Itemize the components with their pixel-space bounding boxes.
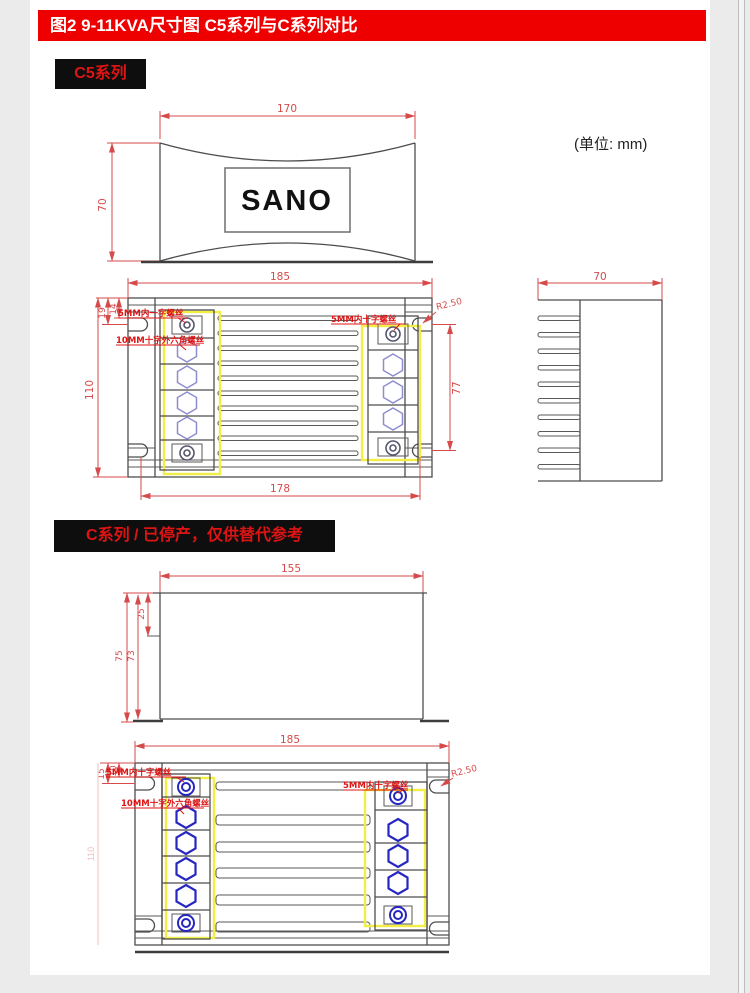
callout-text: 5MM内十字螺丝	[106, 767, 172, 778]
terminal-block-left	[160, 310, 220, 474]
callout-text: 5MM内十字螺丝	[331, 314, 397, 325]
dim-text: 110	[86, 847, 96, 861]
dim-text: 110	[84, 380, 96, 400]
c5-front-view-drawing: 185 19 14 110 178 77	[88, 272, 483, 522]
mount-slot-bottom-left	[128, 444, 148, 457]
product-dimension-page: { "page": { "title_bar": "图2 9-11KVA尺寸图 …	[0, 0, 750, 993]
page-right-border	[738, 0, 745, 993]
callout-text: 5MM内一字螺丝	[118, 308, 184, 319]
terminal-block-right	[365, 782, 427, 930]
callout-text: 10MM十字外六角螺丝	[116, 335, 205, 346]
mount-slot-top-right	[413, 318, 432, 331]
brand-logo-text: SANO	[241, 185, 333, 217]
heatsink-body	[538, 300, 662, 481]
dim-text: 77	[451, 381, 463, 394]
dim-width-185: 185	[128, 271, 432, 298]
mount-slot-bottom-right	[413, 444, 432, 457]
vent-slots	[218, 316, 358, 456]
dim-text: R2.50	[450, 764, 478, 780]
dim-text: 73	[127, 650, 137, 661]
dim-text: 70	[97, 198, 109, 211]
c5-top-view-drawing: 170 70 SANO	[95, 95, 485, 280]
dim-width-170: 170	[160, 103, 415, 139]
dim-text: 155	[281, 563, 301, 575]
dim-text: 70	[593, 271, 606, 283]
figure-title-bar: 图2 9-11KVA尺寸图 C5系列与C系列对比	[38, 10, 706, 41]
dim-height-70: 70	[97, 143, 160, 261]
unit-note: (单位: mm)	[574, 133, 647, 154]
dim-radius-r250: R2.50	[423, 297, 464, 323]
dim-width-155: 155	[160, 563, 423, 593]
dim-height-110-faint: 110	[86, 763, 98, 945]
dim-text: 75	[115, 650, 125, 661]
section-label-c5: C5系列	[55, 59, 146, 89]
dim-text: 185	[270, 271, 290, 283]
dim-text: 25	[137, 608, 147, 619]
c-front-view-drawing: 185 15 10 110 R2.50 5MM内十字螺丝 10MM十字外六角螺丝	[90, 734, 485, 968]
dim-width-70: 70	[538, 271, 662, 300]
mount-slot-top-right	[430, 780, 450, 793]
mount-slot-top-left	[128, 318, 148, 331]
section-label-c: C系列 / 已停产，仅供替代参考	[54, 520, 335, 552]
dim-text: R2.50	[435, 297, 463, 313]
terminal-block-right	[362, 316, 420, 464]
callout-text: 5MM内十字螺丝	[343, 780, 409, 791]
callout-text: 10MM十字外六角螺丝	[121, 798, 210, 809]
mount-slot-bottom-left	[135, 919, 155, 932]
dim-radius-r250: R2.50	[441, 764, 479, 786]
dim-offset-25: 25	[137, 593, 148, 636]
content-card: 图2 9-11KVA尺寸图 C5系列与C系列对比 C5系列 (单位: mm) 1…	[30, 0, 710, 975]
c5-side-view-drawing: 70	[528, 268, 693, 493]
vent-slots	[216, 782, 370, 932]
dim-span-77: 77	[432, 325, 463, 451]
dim-text: 19	[98, 307, 108, 319]
heatsink-fins	[538, 316, 580, 469]
dim-text: 178	[270, 483, 290, 495]
mount-slot-bottom-right	[430, 922, 450, 935]
mount-slot-top-left	[135, 777, 155, 790]
cover-body	[133, 593, 449, 721]
dim-text: 170	[277, 103, 297, 115]
top-view-body: SANO	[141, 143, 433, 262]
dim-text: 185	[280, 734, 300, 746]
dim-width-185: 185	[135, 734, 449, 763]
c-side-view-drawing: 155 75 73 25	[105, 556, 485, 751]
